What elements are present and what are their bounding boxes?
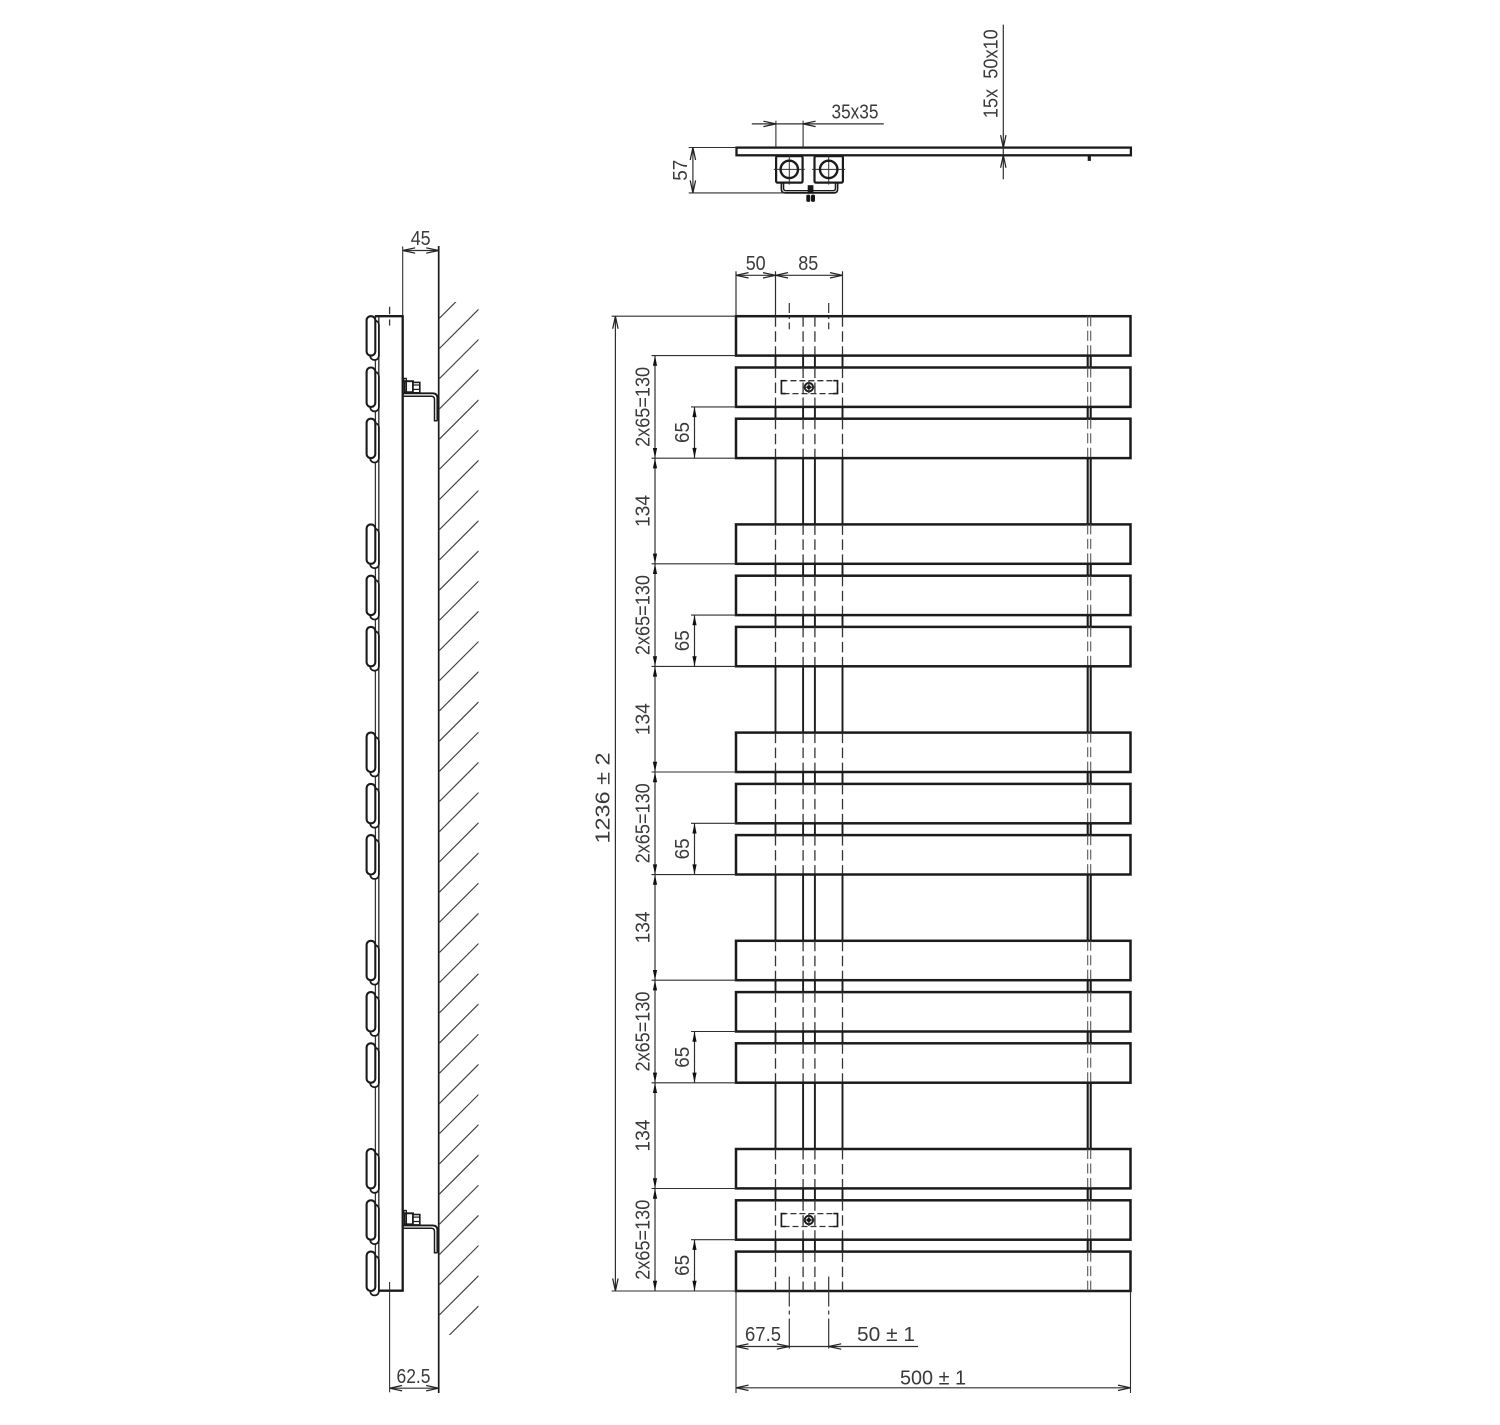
svg-text:15x 50x10: 15x 50x10 [981, 29, 1003, 118]
svg-text:500 ± 1: 500 ± 1 [900, 1368, 966, 1390]
svg-text:134: 134 [633, 703, 655, 735]
svg-text:85: 85 [798, 253, 818, 275]
svg-text:65: 65 [672, 630, 694, 651]
svg-text:65: 65 [672, 1255, 694, 1276]
svg-text:45: 45 [411, 228, 431, 250]
svg-text:1236 ± 2: 1236 ± 2 [593, 753, 615, 844]
svg-text:50: 50 [746, 253, 766, 275]
svg-text:134: 134 [633, 911, 655, 943]
svg-text:2x65=130: 2x65=130 [633, 783, 655, 863]
svg-text:67.5: 67.5 [745, 1324, 781, 1346]
svg-text:50 ± 1: 50 ± 1 [857, 1324, 915, 1346]
svg-text:65: 65 [672, 422, 694, 443]
svg-text:2x65=130: 2x65=130 [633, 1200, 655, 1280]
svg-text:57: 57 [670, 160, 692, 181]
svg-text:65: 65 [672, 1047, 694, 1068]
svg-text:134: 134 [633, 1120, 655, 1152]
svg-text:65: 65 [672, 838, 694, 859]
svg-text:134: 134 [633, 495, 655, 527]
svg-text:62.5: 62.5 [397, 1366, 431, 1388]
svg-text:2x65=130: 2x65=130 [633, 367, 655, 447]
svg-text:2x65=130: 2x65=130 [633, 575, 655, 655]
svg-text:2x65=130: 2x65=130 [633, 992, 655, 1072]
svg-text:35x35: 35x35 [832, 101, 879, 123]
